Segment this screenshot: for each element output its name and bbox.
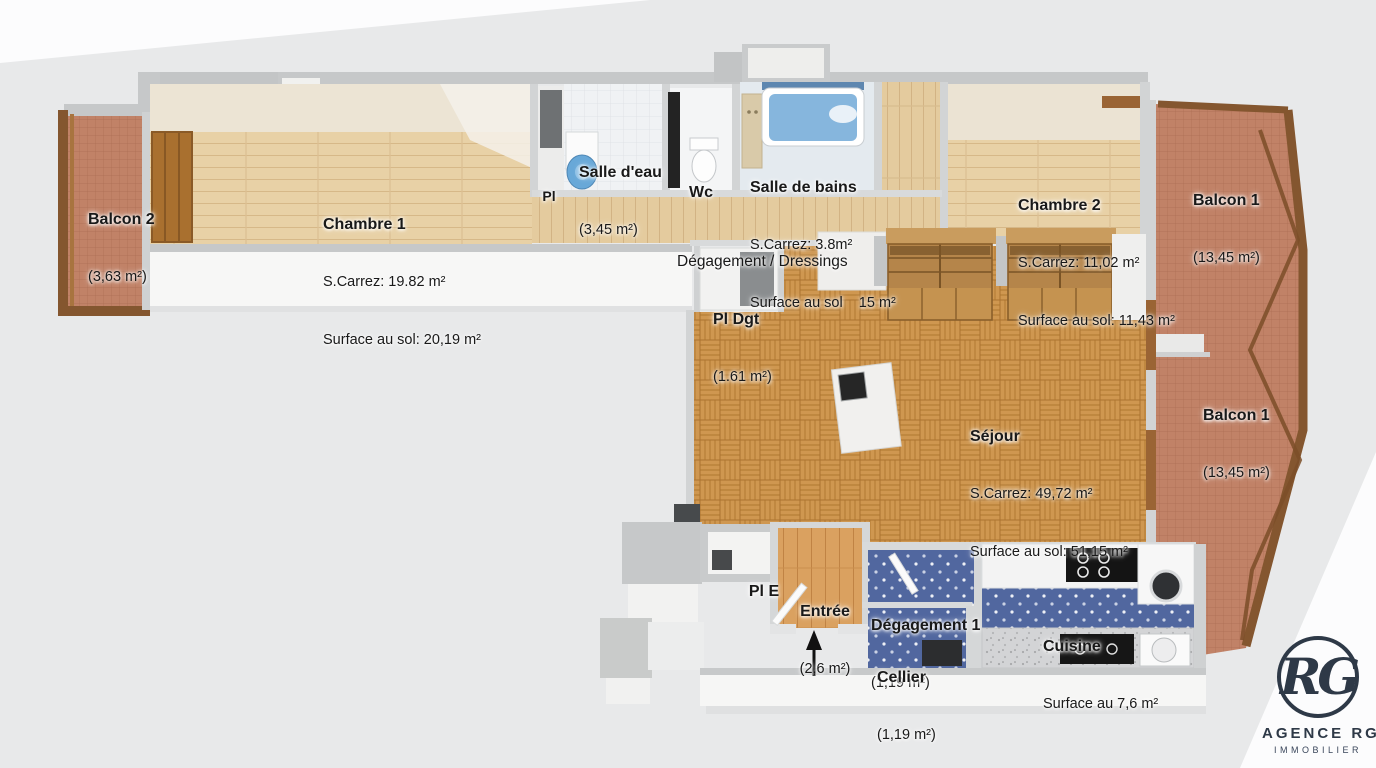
room-carrez: S.Carrez: 11,02 m²	[1018, 255, 1175, 273]
room-title: Salle de bains	[750, 178, 896, 198]
room-carrez: S.Carrez: 19.82 m²	[323, 274, 481, 292]
room-area: (1,19 m²)	[877, 727, 936, 745]
label-chambre-1: Chambre 1 S.Carrez: 19.82 m² Surface au …	[323, 175, 481, 389]
room-sol: Surface au sol: 11,43 m²	[1018, 313, 1175, 331]
room-title: Pl Dgt	[713, 310, 772, 330]
label-balcon-1-haut: Balcon 1 (13,45 m²)	[1193, 151, 1260, 308]
label-balcon-1-milieu: Balcon 1 (13,45 m²)	[1203, 366, 1270, 523]
room-carrez: S.Carrez: 49,72 m²	[970, 486, 1128, 504]
room-title: Wc	[689, 183, 713, 203]
label-cuisine: Cuisine Surface au 7,6 m²	[1043, 597, 1158, 754]
room-area: (3,63 m²)	[88, 269, 155, 287]
room-sol: Surface au 7,6 m²	[1043, 696, 1158, 714]
room-title: Balcon 1	[1203, 406, 1270, 426]
wardrobe-unit-1	[886, 228, 996, 320]
label-placard: Pl	[540, 148, 558, 245]
room-area: (13,45 m²)	[1203, 465, 1270, 483]
room-area: (1.61 m²)	[713, 369, 772, 387]
room-title: Chambre 2	[1018, 196, 1175, 216]
room-title: Chambre 1	[323, 215, 481, 235]
logo-agency-name: AGENCE RG	[1262, 725, 1374, 742]
floorplan-page: Balcon 2 (3,63 m²) Chambre 1 S.Carrez: 1…	[0, 0, 1376, 768]
logo-circle: RG	[1277, 636, 1359, 718]
room-title: Entrée	[800, 602, 851, 622]
label-cellier: Cellier (1,19 m²)	[877, 628, 936, 768]
room-area: (2,6 m²)	[800, 661, 851, 679]
logo-tagline: IMMOBILIER	[1262, 745, 1374, 755]
logo-monogram: RG	[1280, 652, 1356, 702]
room-area: (3,45 m²)	[579, 222, 662, 240]
agency-logo: RG AGENCE RG IMMOBILIER	[1262, 636, 1374, 755]
room-title: Pl E	[749, 582, 779, 602]
floorplan-svg	[0, 0, 1376, 768]
label-salle-deau: Salle d'eau (3,45 m²)	[579, 123, 662, 280]
room-area: (13,45 m²)	[1193, 250, 1260, 268]
room-title: Cuisine	[1043, 637, 1158, 657]
label-pl-e: Pl E	[749, 542, 779, 641]
room-title: Pl	[540, 188, 558, 205]
room-title: Dégagement / Dressings	[677, 252, 848, 271]
room-sol: Surface au sol: 20,19 m²	[323, 332, 481, 350]
label-balcon-2: Balcon 2 (3,63 m²)	[88, 170, 155, 327]
label-pl-dgt: Pl Dgt (1.61 m²)	[713, 270, 772, 427]
label-chambre-2: Chambre 2 S.Carrez: 11,02 m² Surface au …	[1018, 156, 1175, 370]
sejour-chimney	[831, 363, 901, 454]
room-sol: Surface au sol: 51,15 m²	[970, 544, 1128, 562]
room-title: Cellier	[877, 668, 936, 688]
room-title: Salle d'eau	[579, 163, 662, 183]
label-sejour: Séjour S.Carrez: 49,72 m² Surface au sol…	[970, 387, 1128, 601]
room-title: Balcon 1	[1193, 191, 1260, 211]
room-title: Séjour	[970, 427, 1128, 447]
room-title: Balcon 2	[88, 210, 155, 230]
label-entree: Entrée (2,6 m²)	[800, 562, 851, 719]
